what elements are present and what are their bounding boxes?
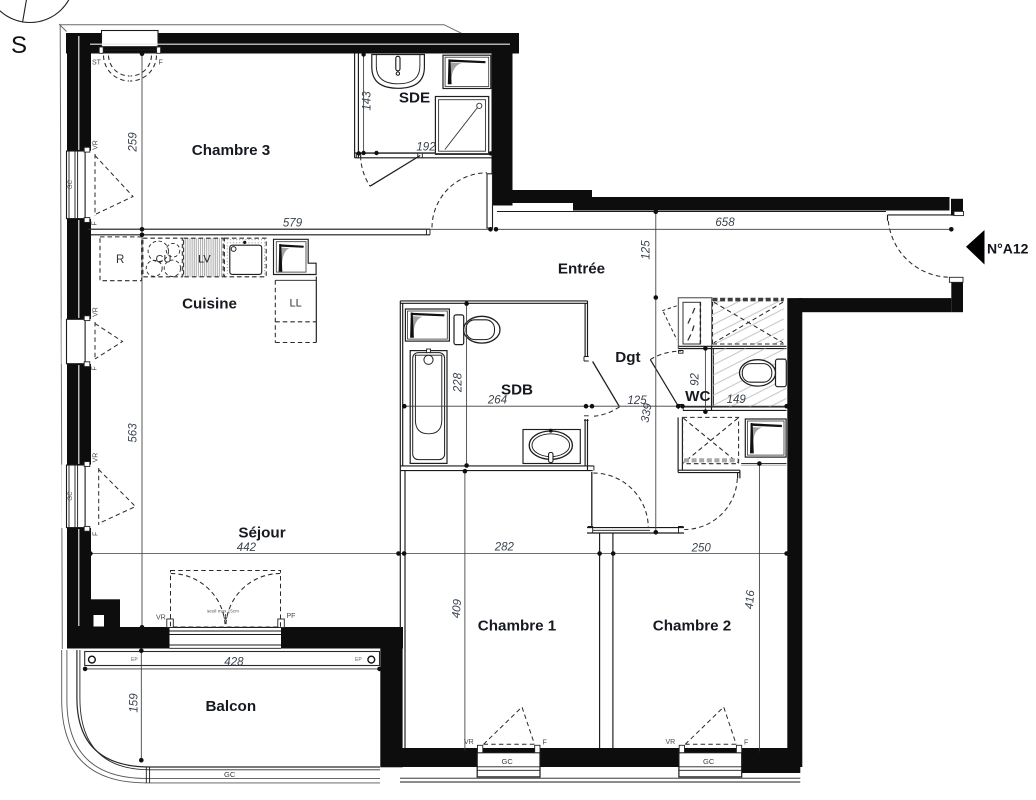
svg-text:R: R (116, 254, 124, 266)
svg-text:WC: WC (685, 388, 710, 405)
svg-text:VR: VR (93, 140, 100, 150)
svg-text:Dgt: Dgt (615, 349, 640, 366)
svg-text:EP: EP (131, 657, 138, 663)
svg-text:ST: ST (92, 60, 102, 67)
svg-text:GC: GC (502, 757, 514, 766)
svg-text:Cuisine: Cuisine (182, 296, 237, 313)
svg-text:LV: LV (198, 254, 211, 266)
svg-text:658: 658 (715, 217, 735, 229)
svg-text:F: F (92, 366, 99, 370)
svg-text:GC: GC (67, 491, 74, 501)
svg-text:409: 409 (450, 598, 464, 619)
svg-text:F: F (159, 60, 163, 67)
svg-text:VR: VR (156, 615, 166, 622)
svg-text:563: 563 (128, 423, 140, 443)
svg-text:228: 228 (453, 372, 465, 393)
svg-text:Séjour: Séjour (238, 525, 285, 542)
svg-text:S: S (11, 32, 27, 59)
svg-text:579: 579 (283, 218, 303, 230)
svg-text:192: 192 (416, 142, 436, 154)
svg-text:F: F (93, 532, 100, 536)
svg-text:Chambre 1: Chambre 1 (478, 618, 557, 635)
svg-text:GC: GC (703, 757, 715, 766)
svg-text:SDE: SDE (399, 90, 430, 107)
svg-text:Balcon: Balcon (205, 698, 256, 715)
svg-text:416: 416 (744, 589, 758, 610)
svg-text:282: 282 (494, 542, 515, 554)
svg-text:F: F (744, 740, 748, 747)
svg-text:143: 143 (362, 91, 374, 111)
svg-text:125: 125 (641, 240, 653, 260)
svg-text:250: 250 (691, 542, 712, 554)
svg-text:VR: VR (666, 739, 676, 746)
svg-text:SDB: SDB (501, 382, 533, 399)
svg-text:Chambre 3: Chambre 3 (192, 142, 271, 159)
svg-text:GC: GC (224, 770, 236, 779)
svg-text:159: 159 (129, 693, 141, 713)
svg-text:149: 149 (727, 394, 747, 406)
svg-text:F: F (92, 221, 99, 225)
svg-text:seuil max 15cm: seuil max 15cm (207, 609, 239, 614)
svg-text:PF: PF (287, 613, 296, 620)
svg-text:92: 92 (690, 373, 702, 386)
svg-text:442: 442 (237, 542, 257, 554)
svg-text:VR: VR (93, 307, 100, 317)
svg-text:428: 428 (224, 656, 244, 668)
svg-text:LL: LL (290, 298, 302, 310)
svg-text:GC: GC (67, 179, 74, 189)
svg-text:F: F (543, 740, 547, 747)
svg-text:EP: EP (355, 657, 362, 663)
svg-text:CU: CU (156, 254, 172, 266)
svg-text:Chambre 2: Chambre 2 (653, 618, 732, 635)
svg-text:Entrée: Entrée (558, 261, 605, 278)
svg-text:VR: VR (464, 739, 474, 746)
svg-text:259: 259 (128, 132, 140, 153)
svg-text:VR: VR (93, 453, 100, 463)
svg-text:N°A12: N°A12 (987, 241, 1029, 257)
